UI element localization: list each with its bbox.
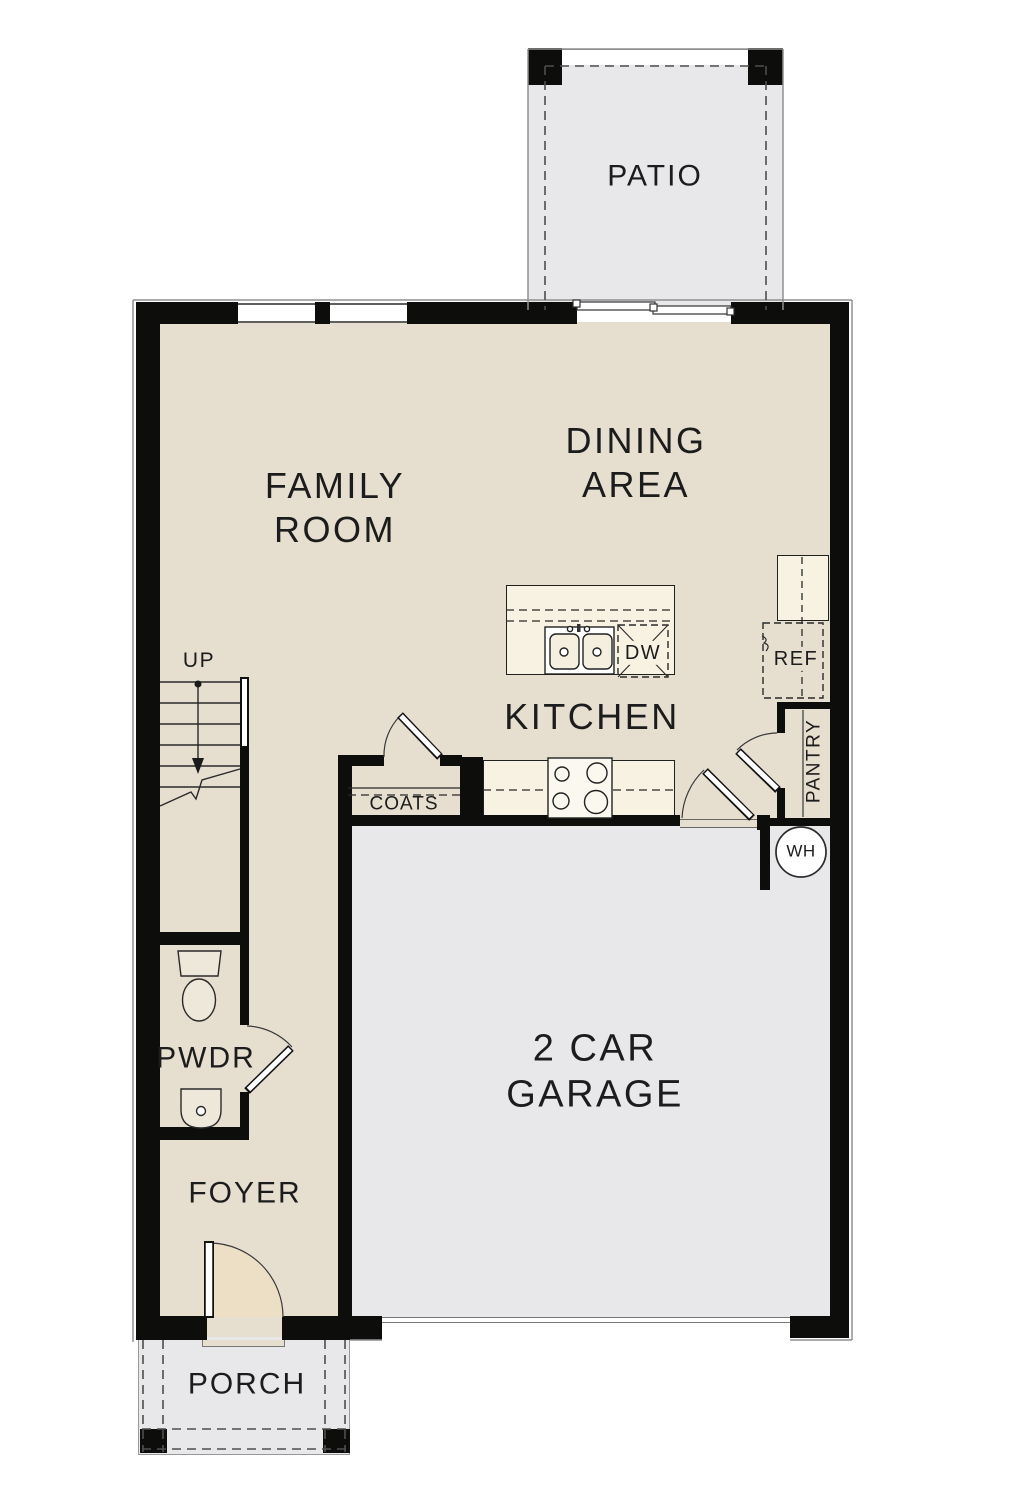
garage-label-line2: GARAGE: [506, 1072, 684, 1118]
label-pantry: PANTRY: [802, 719, 825, 803]
floor-plan: PATIO FAMILY ROOM DINING AREA KITCHEN 2 …: [0, 0, 1022, 1500]
dining-label-line1: DINING: [566, 419, 707, 463]
door-arcs: [211, 716, 777, 1317]
room-label-family: FAMILY ROOM: [265, 464, 405, 552]
sliding-door-icon: [573, 300, 734, 315]
plan-linework: [0, 0, 1022, 1500]
family-label-line1: FAMILY: [265, 464, 405, 508]
room-label-kitchen: KITCHEN: [504, 695, 680, 739]
label-ref: REF: [771, 647, 822, 671]
stove-icon: [548, 758, 612, 818]
sink-icon: [545, 624, 614, 674]
refrigerator-icon: [762, 557, 823, 698]
room-label-porch: PORCH: [188, 1367, 306, 1404]
garage-label-line1: 2 CAR: [506, 1026, 684, 1072]
room-label-patio: PATIO: [607, 159, 703, 196]
family-label-line2: ROOM: [265, 508, 405, 552]
bathroom-sink-icon: [181, 1089, 221, 1128]
room-label-dining: DINING AREA: [566, 419, 707, 507]
toilet-icon: [178, 951, 221, 1021]
label-coats: COATS: [369, 792, 438, 815]
room-label-garage: 2 CAR GARAGE: [506, 1026, 684, 1119]
dining-label-line2: AREA: [566, 463, 707, 507]
room-label-pwdr: PWDR: [156, 1041, 256, 1078]
door-leaves: [209, 715, 778, 1318]
label-dw: DW: [623, 641, 663, 665]
stairs-icon: [160, 681, 240, 807]
label-up: UP: [183, 648, 215, 674]
exterior-outline: [133, 49, 852, 1342]
front-door-swing: [209, 1243, 283, 1317]
room-label-foyer: FOYER: [188, 1176, 301, 1213]
label-wh: WH: [786, 842, 815, 863]
